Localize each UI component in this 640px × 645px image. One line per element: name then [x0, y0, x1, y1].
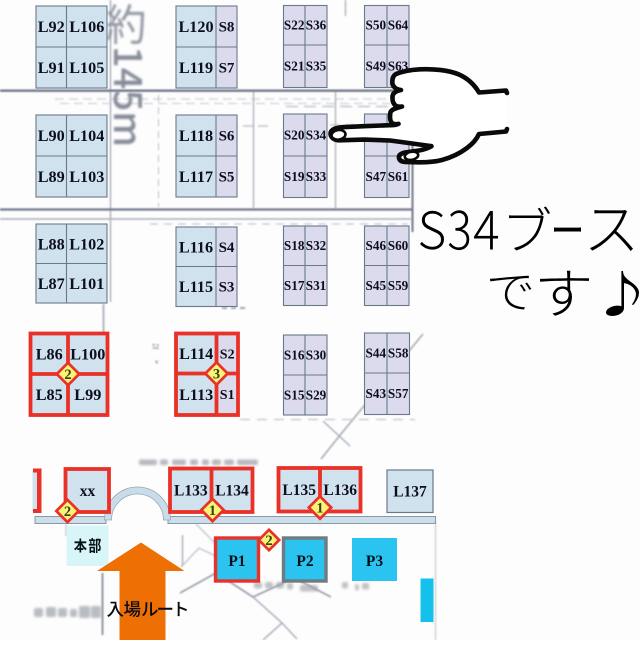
svg-text:2: 2 [64, 504, 71, 520]
svg-text:L103: L103 [69, 168, 104, 186]
svg-text:L87: L87 [38, 275, 65, 293]
svg-text:S45: S45 [366, 278, 387, 293]
svg-text:S20: S20 [284, 128, 305, 143]
svg-text:S64: S64 [388, 18, 409, 33]
svg-text:L114: L114 [179, 345, 213, 363]
svg-text:2: 2 [64, 367, 71, 383]
svg-text:P3: P3 [366, 553, 383, 570]
svg-text:S49: S49 [366, 59, 387, 74]
svg-text:S1: S1 [220, 388, 235, 403]
svg-text:S2: S2 [220, 347, 235, 362]
svg-text:S58: S58 [388, 346, 409, 361]
svg-text:S19: S19 [284, 169, 305, 184]
svg-text:xx: xx [80, 483, 96, 500]
svg-text:L118: L118 [179, 127, 213, 145]
svg-text:S44: S44 [366, 346, 387, 361]
svg-text:L116: L116 [179, 238, 213, 256]
svg-text:S22: S22 [284, 18, 305, 33]
svg-text:S15: S15 [284, 388, 305, 403]
svg-text:S17: S17 [284, 278, 305, 293]
svg-text:L106: L106 [69, 18, 104, 36]
svg-text:v: v [155, 358, 159, 366]
svg-text:L85: L85 [36, 386, 63, 404]
svg-text:L137: L137 [393, 484, 427, 501]
svg-text:S18: S18 [284, 238, 305, 253]
svg-text:S31: S31 [306, 278, 327, 293]
svg-text:S50: S50 [366, 18, 387, 33]
svg-text:L86: L86 [36, 345, 63, 363]
svg-text:L105: L105 [69, 59, 104, 77]
svg-text:1: 1 [209, 503, 216, 519]
svg-text:S30: S30 [306, 348, 327, 363]
svg-text:S3: S3 [219, 280, 235, 296]
svg-text:S6: S6 [219, 129, 235, 145]
svg-text:2: 2 [265, 533, 272, 549]
svg-text:1: 1 [316, 501, 323, 517]
svg-text:S8: S8 [219, 20, 235, 36]
svg-text:S47: S47 [366, 169, 387, 184]
svg-text:3: 3 [213, 367, 220, 383]
svg-text:S7: S7 [219, 61, 235, 77]
svg-text:L120: L120 [178, 18, 213, 36]
svg-text:L104: L104 [69, 127, 104, 145]
svg-text:L135: L135 [282, 482, 316, 499]
svg-text:L113: L113 [179, 386, 213, 404]
svg-text:S33: S33 [306, 169, 327, 184]
svg-text:L117: L117 [179, 168, 213, 186]
svg-text:P1: P1 [228, 553, 245, 570]
svg-text:S4: S4 [219, 240, 235, 256]
svg-text:L101: L101 [69, 275, 104, 293]
svg-text:L99: L99 [74, 386, 101, 404]
svg-text:S43: S43 [366, 386, 387, 401]
svg-text:L90: L90 [38, 127, 65, 145]
svg-text:S36: S36 [306, 18, 327, 33]
svg-text:L100: L100 [70, 345, 105, 363]
svg-text:S29: S29 [306, 388, 327, 403]
svg-text:L89: L89 [38, 168, 65, 186]
svg-text:S32: S32 [306, 238, 327, 253]
svg-text:L115: L115 [179, 278, 213, 296]
svg-text:L91: L91 [38, 59, 65, 77]
svg-text:L133: L133 [174, 483, 208, 500]
svg-text:S16: S16 [284, 348, 305, 363]
svg-text:L92: L92 [38, 18, 65, 36]
svg-text:L102: L102 [69, 235, 104, 253]
svg-text:S46: S46 [366, 238, 387, 253]
svg-text:S57: S57 [388, 386, 409, 401]
svg-text:L88: L88 [38, 235, 65, 253]
svg-text:L136: L136 [323, 482, 357, 499]
svg-text:L134: L134 [215, 483, 249, 500]
svg-text:S61: S61 [388, 169, 409, 184]
svg-text:L119: L119 [179, 59, 213, 77]
svg-text:S21: S21 [284, 59, 305, 74]
svg-text:S35: S35 [306, 59, 327, 74]
svg-text:S5: S5 [219, 170, 235, 186]
svg-text:P2: P2 [296, 553, 313, 570]
svg-text:S59: S59 [388, 278, 409, 293]
svg-text:52: 52 [152, 343, 160, 351]
svg-text:S34: S34 [306, 128, 327, 143]
svg-text:S60: S60 [388, 238, 409, 253]
